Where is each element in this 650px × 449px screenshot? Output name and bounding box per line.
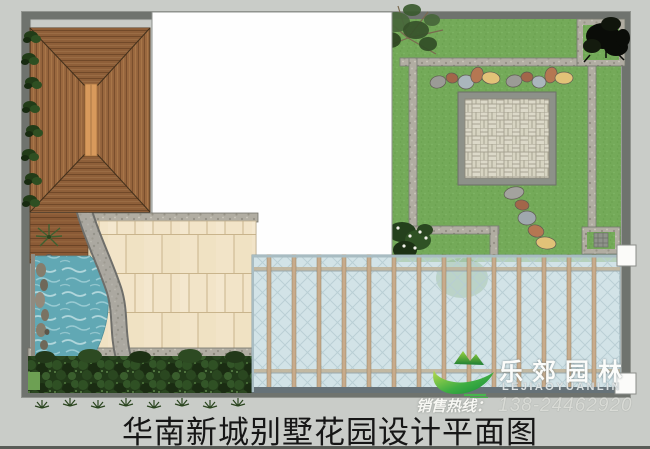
central-plaza bbox=[458, 92, 556, 185]
company-logo: 乐郊园林 LEJIAOYUANLIN bbox=[428, 348, 640, 400]
garden-plan-page: 乐郊园林 LEJIAOYUANLIN 销售热线： 138-24462920 华南… bbox=[0, 0, 650, 449]
lawn-garden bbox=[379, 4, 630, 259]
grass-patch bbox=[28, 372, 40, 390]
pavilion-ridge bbox=[85, 84, 97, 156]
plan-title: 华南新城别墅花园设计平面图 bbox=[5, 407, 650, 449]
drain-square bbox=[582, 227, 620, 254]
left-courtyard bbox=[28, 210, 258, 393]
logo-name-en: LEJIAOYUANLIN bbox=[502, 381, 622, 393]
pavilion-roof bbox=[30, 28, 150, 213]
corner-planter-tree bbox=[577, 17, 630, 66]
swimming-pool bbox=[31, 254, 108, 367]
logo-swoosh-icon bbox=[428, 348, 498, 398]
